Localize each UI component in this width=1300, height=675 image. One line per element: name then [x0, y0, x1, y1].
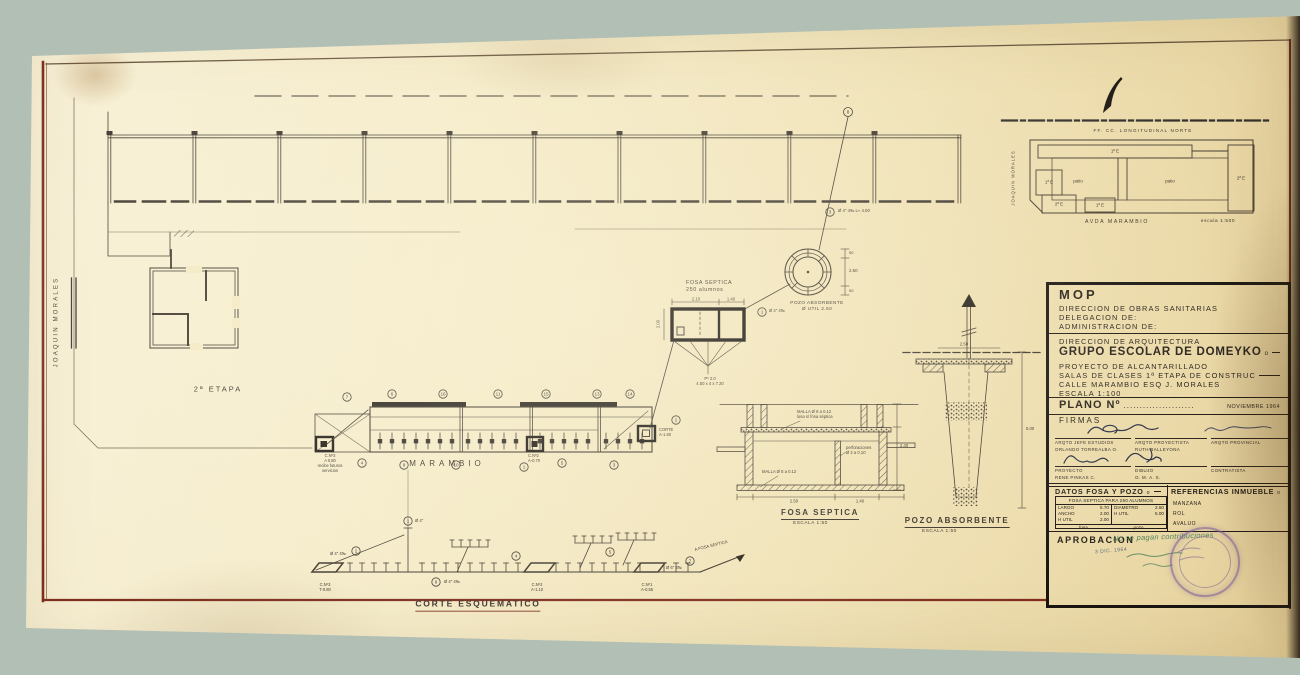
stage2-building-plan	[150, 250, 240, 350]
siteplan-street-bottom-label: AVDA MARAMBIO	[1085, 219, 1149, 226]
callout-number: 5	[561, 461, 564, 466]
fosa-section-ann-top: MALLA Ø 8 a 0.12 losa s/ fosa séptica	[797, 409, 833, 420]
callout-number: 3	[613, 463, 616, 468]
divider	[1049, 414, 1288, 415]
corte-cam2-label: C.Nº2 A-1.10	[531, 582, 543, 592]
sig-contratista: CONTRATISTA	[1211, 466, 1288, 475]
street-label-joaquin-morales: JOAQUIN MORALES	[53, 277, 61, 368]
corte-riser-note: Ø 4"	[415, 518, 423, 523]
datos-footer-fosa: fosa	[1056, 525, 1111, 531]
subject-line-2: SALAS DE CLASES 1ª ETAPA DE CONSTRUC	[1059, 371, 1256, 380]
stage-label: 2ª ETAPA	[194, 384, 243, 393]
corte-caption: CORTE ESQUEMATICO	[415, 599, 540, 612]
callout-number: 3	[829, 210, 832, 215]
title-block: MOP DIRECCION DE OBRAS SANITARIAS DELEGA…	[1046, 282, 1291, 608]
pozo-section-caption: POZO ABSORBENTE	[905, 516, 1010, 528]
fosa-section-dim-right: 2.40	[900, 443, 908, 448]
scanned-plan-sheet: 7 6 16 11 15 13 14 4 9 10 1 5 3 2 8 3 1	[0, 0, 1300, 675]
fosa-section-scale: ESCALA 1:50	[793, 521, 828, 527]
datos-body: LARGO5.70 ANCHO2.00 H UTIL2.00 DIAMETRO2…	[1056, 505, 1166, 524]
sig-role: ARQTO PROYECTISTA	[1135, 440, 1207, 447]
callout-number: 6	[391, 392, 394, 397]
callout-number: 2	[675, 418, 678, 423]
callout-number: 16	[440, 392, 446, 397]
corte-square-note: CORTE A-1.50	[659, 427, 673, 437]
fosa-section-caption: FOSA SEPTICA	[781, 508, 859, 520]
project-title: GRUPO ESCOLAR DE DOMEYKO	[1059, 346, 1262, 358]
sig-provincial: ARQTO PROVINCIAL	[1211, 438, 1288, 447]
sig-proyecto: PROYECTO RENE PINKAS C.	[1055, 466, 1131, 481]
referencias-suffix: o	[1277, 490, 1281, 496]
siteplan-left-lower-label: 2ª E	[1055, 201, 1063, 207]
datos-header-row: DATOS FOSA Y POZO o	[1055, 487, 1161, 496]
corte-under-note: Ø 4" 4‰	[444, 579, 460, 584]
plano-row: PLANO Nº ...................... NOVIEMBR…	[1059, 399, 1280, 411]
pozo-section-scale: ESCALA 1:50	[922, 529, 957, 535]
callout-number: 5	[609, 550, 612, 555]
corte-cam3-label: C.Nº3 T-0.80	[319, 582, 331, 592]
referencias-header: REFERENCIAS INMUEBLE	[1171, 487, 1274, 496]
fosa-plan-dim-left: 2.00	[655, 320, 660, 328]
plano-date: NOVIEMBRE 1964	[1227, 404, 1280, 410]
sanitary-block-plan	[315, 340, 674, 528]
sig-name: ORLANDO TORREALBA O.	[1055, 447, 1131, 454]
callout-number: 11	[496, 392, 501, 397]
datos-key: H UTIL	[1114, 511, 1129, 517]
fill-line	[1259, 375, 1280, 376]
callout-number: 7	[689, 559, 692, 564]
divider	[1167, 485, 1168, 531]
fosa-section-ann-bottom: MALLA Ø 8 a 0.12	[762, 469, 796, 474]
callout-number: 9	[403, 463, 406, 468]
site-plan-drawing	[1002, 121, 1268, 214]
siteplan-left-upper-label: 1ª E	[1045, 179, 1053, 185]
datos-value: 2.00	[1100, 517, 1109, 523]
org-line-1: DIRECCION DE OBRAS SANITARIAS	[1059, 304, 1218, 313]
callout-number: 13	[594, 392, 600, 397]
datos-col-fosa: LARGO5.70 ANCHO2.00 H UTIL2.00	[1056, 505, 1111, 524]
fosa-plan-note: Pº 2.0 4.50 x 4 x 7.20	[696, 376, 723, 387]
callout-number: 7	[346, 395, 349, 400]
sig-name: O. M. A. S.	[1135, 475, 1207, 482]
callout-number: 8	[847, 110, 850, 115]
callout-number: 6	[435, 580, 438, 585]
sig-proyectista: ARQTO PROYECTISTA RUTH BALLEYONA	[1135, 438, 1207, 453]
aprobacion-date-stamp: 3 DIC. 1964	[1095, 547, 1128, 556]
sig-role: CONTRATISTA	[1211, 468, 1288, 475]
fosa-section-dim-b1: 2.50	[790, 498, 798, 503]
sig-name: RENE PINKAS C.	[1055, 475, 1131, 482]
sig-dibujo: DIBUJO O. M. A. S.	[1135, 466, 1207, 481]
pozo-absorbente-section	[903, 294, 1040, 508]
siteplan-scale-label: escala 1:500	[1201, 219, 1235, 225]
callout-number: 2	[355, 549, 358, 554]
pozo-plan-dim-bottom: 50	[849, 288, 853, 293]
cam2-note: C.Nº2 A-0.70	[528, 453, 558, 463]
plano-dots: ......................	[1124, 401, 1195, 410]
pipe-note: Ø 4" 4‰ L≈ 4.00	[838, 208, 870, 213]
datos-footer: fosa pozo	[1056, 524, 1166, 531]
pozo-absorbente-plan	[785, 249, 849, 295]
pozo-section-dim-right: 5.00	[1026, 426, 1034, 431]
datos-col-pozo: DIAMETRO2.50 H UTIL5.00	[1111, 505, 1166, 524]
project-suffix: o	[1265, 351, 1269, 357]
divider	[1049, 333, 1288, 334]
plano-label: PLANO Nº	[1059, 399, 1121, 411]
divider	[1049, 397, 1288, 398]
subject-line-3: CALLE MARAMBIO ESQ J. MORALES	[1059, 380, 1220, 389]
pozo-plan-pipe-note: Ø 4" 4‰	[769, 308, 785, 313]
subject-line-2-row: SALAS DE CLASES 1ª ETAPA DE CONSTRUC	[1059, 371, 1280, 380]
subject-line-1: PROYECTO DE ALCANTARILLADO	[1059, 362, 1208, 371]
callout-number: 15	[543, 392, 549, 397]
firmas-label: FIRMAS	[1059, 416, 1101, 425]
fosa-section-ann-perf: perforaciones Ø 2 a 0.10	[846, 445, 871, 456]
pozo-plan-label: POZO ABSORBENTE Ø UTIL 2.50	[790, 301, 843, 313]
dept-line: DIRECCION DE ARQUITECTURA	[1059, 337, 1200, 346]
north-arrow-icon	[1103, 77, 1123, 113]
callout-number: 1	[523, 465, 526, 470]
fosa-plan-dim-b: 1.40	[727, 296, 735, 301]
datos-subheader: FOSA SEPTICA PARA 250 ALUMNOS	[1056, 497, 1166, 505]
fill-line	[1154, 491, 1161, 492]
org-line-3: ADMINISTRACION DE:	[1059, 322, 1157, 331]
corte-right-note: Ø 6" 3‰	[666, 565, 682, 570]
classroom-wing-plan	[107, 96, 962, 256]
referencias-row-avaluo: AVALUO	[1173, 521, 1196, 527]
siteplan-bottom-wing-label: 1ª E	[1096, 202, 1104, 208]
siteplan-patio-left-label: patio	[1073, 178, 1083, 184]
siteplan-street-left-label: JOAQUIN MORALES	[1010, 150, 1015, 205]
datos-value: 5.00	[1155, 511, 1164, 517]
callout-number: 4	[361, 461, 364, 466]
street-label-marambio: MARAMBIO	[409, 459, 485, 469]
paper-sheet: 7 6 16 11 15 13 14 4 9 10 1 5 3 2 8 3 1	[0, 0, 1300, 675]
siteplan-right-wing-label: 2ª E	[1237, 175, 1245, 181]
sig-jefe-estudios: ARQTO JEFE ESTUDIOS ORLANDO TORREALBA O.	[1055, 438, 1131, 453]
sig-role: PROYECTO	[1055, 468, 1131, 475]
datos-footer-pozo: pozo	[1111, 525, 1166, 531]
callout-number: 1	[407, 519, 410, 524]
pozo-plan-dim-top: 50	[849, 250, 853, 255]
callout-number: 4	[515, 554, 518, 559]
corte-cam1-label: C.Nº1 A-0.55	[641, 582, 653, 592]
referencias-header-row: REFERENCIAS INMUEBLE o	[1171, 487, 1284, 496]
sig-role: ARQTO JEFE ESTUDIOS	[1055, 440, 1131, 447]
numbered-callouts: 7 6 16 11 15 13 14 4 9 10 1 5 3 2 8 3 1	[343, 108, 853, 587]
callout-number: 1	[761, 310, 764, 315]
datos-header: DATOS FOSA Y POZO	[1055, 487, 1144, 496]
datos-table: FOSA SEPTICA PARA 250 ALUMNOS LARGO5.70 …	[1055, 496, 1167, 529]
fill-line	[1272, 352, 1280, 353]
sig-name: RUTH BALLEYONA	[1135, 447, 1207, 454]
project-title-row: GRUPO ESCOLAR DE DOMEYKO o	[1059, 346, 1280, 358]
siteplan-top-wing-label: 1ª E	[1111, 148, 1119, 154]
siteplan-railway-label: FF. CC. LONGITUDINAL NORTE	[1093, 128, 1192, 134]
chamber-note: C.Nº3 A 0.80 recibe futuros servicios	[308, 453, 352, 473]
callout-number: 14	[627, 392, 633, 397]
sig-role: ARQTO PROVINCIAL	[1211, 440, 1288, 447]
fosa-plan-dim-a: 2.10	[692, 296, 700, 301]
referencias-row-rol: ROL	[1173, 511, 1185, 517]
fosa-plan-label: FOSA SEPTICA 250 alumnos	[686, 280, 732, 294]
datos-key: H UTIL	[1058, 517, 1073, 523]
pozo-plan-dim: 2.50	[849, 268, 858, 274]
sig-role: DIBUJO	[1135, 468, 1207, 475]
pozo-section-dim-top: 2.50	[960, 341, 968, 346]
divider	[1049, 483, 1288, 484]
fosa-section-dim-b2: 1.40	[856, 498, 864, 503]
referencias-row-manzana: MANZANA	[1173, 501, 1202, 507]
fosa-septica-plan	[664, 299, 744, 374]
agency-name: MOP	[1059, 287, 1098, 302]
corte-left-note: Ø 4" 4‰	[330, 551, 346, 556]
siteplan-patio-right-label: patio	[1165, 178, 1175, 184]
org-line-2: DELEGACION DE:	[1059, 313, 1137, 322]
